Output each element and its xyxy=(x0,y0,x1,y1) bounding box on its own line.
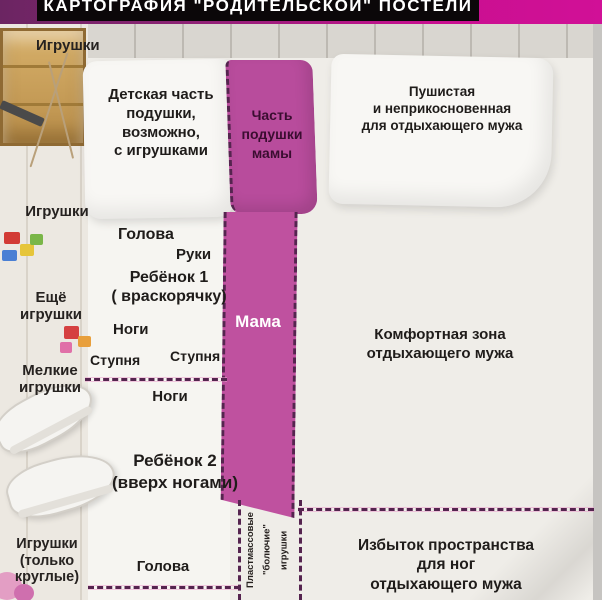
child1-foot-left-label: Ступня xyxy=(90,352,140,368)
toy-brick-blue xyxy=(2,250,17,261)
child-pillow-label: Детская часть подушки, возможно, с игруш… xyxy=(96,86,226,161)
left-rail-label-small-toys: Мелкие игрушки xyxy=(6,362,94,397)
plastic-toys-label: Пластмассовые "болючие" игрушки xyxy=(243,502,293,598)
child1-hands-label: Руки xyxy=(176,246,211,263)
husband-feet-label: Избыток пространства для ног отдыхающего… xyxy=(320,536,572,594)
husband-pillow-label: Пушистая и неприкосновенная для отдыхающ… xyxy=(336,84,548,135)
dashed-boundary-child1 xyxy=(85,378,227,381)
title-box: КАРТОГРАФИЯ "РОДИТЕЛЬСКОЙ" ПОСТЕЛИ xyxy=(37,0,479,21)
pink-toy xyxy=(14,584,34,600)
child2-legs-label: Ноги xyxy=(118,388,222,405)
toy-brick-yellow xyxy=(20,244,34,256)
left-rail-label-round-toys: Игрушки (только круглые) xyxy=(0,536,94,586)
mom-pillow-label: Часть подушки мамы xyxy=(236,106,308,163)
crate-slat xyxy=(3,65,83,68)
toy-piece-red xyxy=(64,326,79,339)
toy-piece-orange xyxy=(78,336,91,347)
child1-foot-right-label: Ступня xyxy=(170,348,220,364)
child2-name-label: Ребёнок 2 (вверх ногами) xyxy=(94,450,256,494)
toy-brick-red xyxy=(4,232,20,244)
toy-piece-pink xyxy=(60,342,72,353)
left-rail-label-more-toys: Ещё игрушки xyxy=(10,289,92,324)
child1-name-label: Ребёнок 1 ( враскорячку) xyxy=(104,268,234,306)
page-title: КАРТОГРАФИЯ "РОДИТЕЛЬСКОЙ" ПОСТЕЛИ xyxy=(44,0,473,14)
mom-strip-label: Мама xyxy=(228,312,288,332)
husband-comfort-label: Комфортная зона отдыхающего мужа xyxy=(338,326,542,364)
toy-brick-green xyxy=(30,234,43,245)
dashed-boundary-husband-feet xyxy=(298,508,594,511)
dashed-boundary-bottom xyxy=(88,586,240,589)
bed-right-edge xyxy=(593,24,602,600)
left-rail-label-toys-2: Игрушки xyxy=(16,203,98,220)
title-band: КАРТОГРАФИЯ "РОДИТЕЛЬСКОЙ" ПОСТЕЛИ xyxy=(0,0,602,24)
left-rail-label-toys-1: Игрушки xyxy=(36,37,116,54)
child2-head-label: Голова xyxy=(110,558,216,575)
child1-legs-label: Ноги xyxy=(113,321,148,338)
plastic-toys-box: Пластмассовые "болючие" игрушки xyxy=(238,500,302,600)
child1-head-label: Голова xyxy=(118,226,174,244)
bed-cartography-infographic: Пластмассовые "болючие" игрушки КАРТОГРА… xyxy=(0,0,602,600)
